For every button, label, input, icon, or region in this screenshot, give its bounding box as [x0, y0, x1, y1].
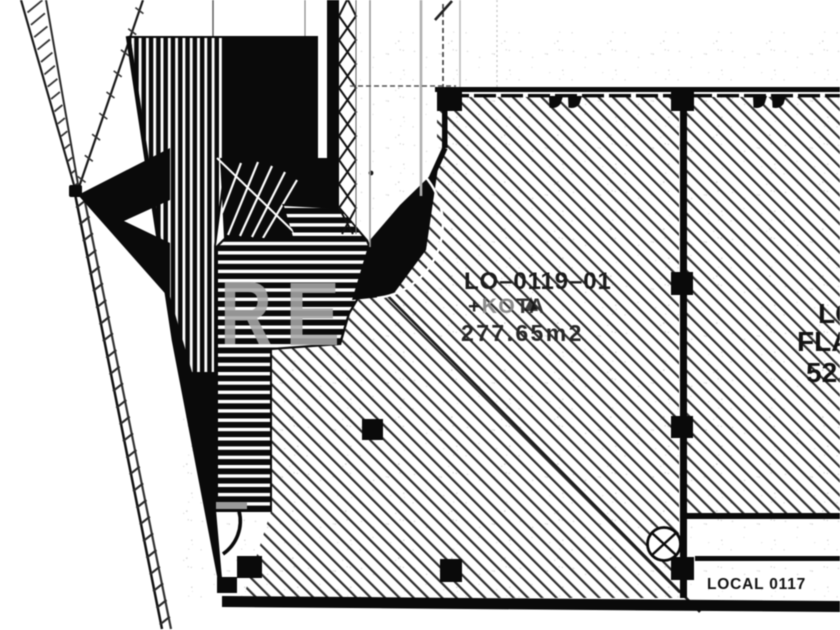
svg-text:R: R	[220, 263, 272, 363]
svg-text:E: E	[285, 265, 340, 365]
svg-text:277.65m2: 277.65m2	[461, 320, 584, 346]
svg-text:LO–0119–01: LO–0119–01	[464, 268, 612, 295]
svg-text:FLAT: FLAT	[797, 326, 840, 357]
svg-text:LOCAL 0117: LOCAL 0117	[707, 576, 806, 593]
svg-text:LOC: LOC	[818, 298, 840, 329]
svg-text:52.: 52.	[806, 357, 840, 388]
